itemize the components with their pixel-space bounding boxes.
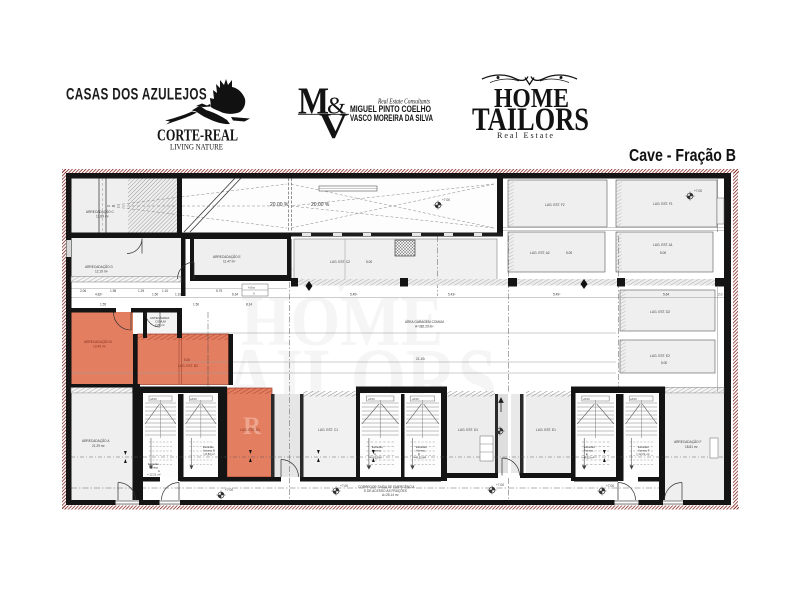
svg-text:2.06: 2.06 [80, 289, 86, 293]
svg-text:A=25.14 m²: A=25.14 m² [382, 493, 399, 497]
svg-text:LUG. EST. D2: LUG. EST. D2 [650, 310, 670, 314]
svg-text:V: V [319, 106, 348, 146]
svg-text:+7.00: +7.00 [694, 189, 702, 193]
svg-text:A.Exa: A.Exa [248, 286, 255, 290]
svg-text:ÁREA GARAGEM COMUM: ÁREA GARAGEM COMUM [405, 320, 444, 324]
svg-text:LUG. EST. B1: LUG. EST. B1 [240, 428, 260, 432]
svg-text:6.34: 6.34 [232, 293, 238, 297]
svg-text:= 12.21 m²: = 12.21 m² [147, 473, 161, 477]
svg-text:ARRECADAÇÃO C: ARRECADAÇÃO C [86, 209, 115, 214]
svg-text:8.14: 8.14 [246, 303, 252, 307]
svg-text:ARRECADAÇÃO B: ARRECADAÇÃO B [84, 339, 112, 344]
svg-text:20.00 %: 20.00 % [270, 202, 289, 208]
svg-text:+8.00: +8.00 [630, 397, 637, 401]
svg-text:LIVING NATURE: LIVING NATURE [170, 143, 223, 152]
svg-text:CASAS DOS AZULEJOS: CASAS DOS AZULEJOS [66, 85, 207, 104]
svg-text:A: A [253, 292, 255, 296]
svg-text:ARRECADAÇÃO D: ARRECADAÇÃO D [85, 264, 114, 269]
svg-text:5.00: 5.00 [660, 251, 666, 255]
svg-text:5.79: 5.79 [216, 289, 222, 293]
svg-text:ARRECADAÇÃO E: ARRECADAÇÃO E [213, 254, 241, 259]
svg-text:1.55: 1.55 [100, 303, 106, 307]
svg-text:LUG. EST. F1: LUG. EST. F1 [653, 202, 673, 206]
svg-text:LUG. EST. C2: LUG. EST. C2 [330, 260, 350, 264]
svg-text:+8.00: +8.00 [368, 397, 375, 401]
svg-text:5.49²: 5.49² [553, 293, 560, 297]
svg-text:+7.00: +7.00 [496, 483, 504, 487]
svg-text:ARRECADAÇÃO F: ARRECADAÇÃO F [674, 439, 702, 444]
svg-text:LUG. EST. E1: LUG. EST. E1 [536, 428, 556, 432]
svg-text:LUG. EST. A2: LUG. EST. A2 [530, 251, 550, 255]
svg-text:1.50: 1.50 [193, 303, 199, 307]
svg-text:5.00: 5.00 [366, 260, 372, 264]
svg-text:2.0: 2.0 [718, 293, 723, 297]
svg-text:5.43²: 5.43² [448, 293, 455, 297]
svg-text:A=382.20 m²: A=382.20 m² [415, 325, 433, 329]
svg-text:5.00: 5.00 [184, 358, 190, 362]
svg-text:= 8.52 m²: = 8.52 m² [370, 456, 382, 460]
svg-text:R: R [243, 413, 262, 440]
svg-text:LUG. EST. A1: LUG. EST. A1 [653, 243, 673, 247]
svg-text:5.00: 5.00 [566, 251, 572, 255]
svg-text:Real Estate: Real Estate [497, 131, 555, 140]
svg-text:1.50: 1.50 [152, 293, 158, 297]
svg-text:+7.00: +7.00 [225, 488, 233, 492]
svg-text:18.81 m²: 18.81 m² [685, 445, 698, 449]
svg-text:12.19 m²: 12.19 m² [95, 270, 108, 274]
svg-text:5.00: 5.00 [661, 361, 667, 365]
svg-text:= 12.21 m²: = 12.21 m² [636, 452, 650, 456]
svg-text:1.29: 1.29 [138, 289, 144, 293]
svg-text:= 8.52 m²: = 8.52 m² [582, 456, 594, 460]
svg-text:LUG. EST. C1: LUG. EST. C1 [318, 428, 338, 432]
svg-text:+7.00: +7.00 [606, 484, 614, 488]
svg-text:+8.00: +8.00 [412, 397, 419, 401]
svg-text:VASCO MOREIRA DA SILVA: VASCO MOREIRA DA SILVA [350, 113, 433, 123]
svg-text:ARRECADAÇÃO A: ARRECADAÇÃO A [82, 438, 110, 443]
svg-text:21.29 m²: 21.29 m² [92, 444, 105, 448]
svg-text:= 8.52 m²: = 8.52 m² [203, 452, 215, 456]
svg-text:+8.00: +8.00 [150, 397, 157, 401]
svg-text:+7.00: +7.00 [340, 484, 348, 488]
svg-text:1.10: 1.10 [162, 289, 168, 293]
svg-text:LUG. EST. E2: LUG. EST. E2 [650, 354, 670, 358]
svg-text:+8.00: +8.00 [190, 397, 197, 401]
svg-text:LUG. EST. D1: LUG. EST. D1 [458, 428, 478, 432]
svg-text:Cave - Fração B: Cave - Fração B [629, 145, 736, 165]
svg-text:13.45 m²: 13.45 m² [93, 345, 106, 349]
svg-text:+8.00: +8.00 [583, 397, 590, 401]
svg-text:1.10: 1.10 [175, 293, 181, 297]
svg-text:1.98: 1.98 [110, 289, 116, 293]
svg-text:20.00 %: 20.00 % [311, 202, 330, 208]
svg-text:11.47 m²: 11.47 m² [223, 260, 235, 264]
svg-text:5.45²: 5.45² [350, 293, 357, 297]
svg-text:+7.00: +7.00 [442, 198, 450, 202]
svg-text:5.64: 5.64 [663, 293, 669, 297]
svg-text:4.82²: 4.82² [95, 293, 102, 297]
svg-text:LUG. EST. F2: LUG. EST. F2 [545, 203, 565, 207]
svg-text:= 8.52 m²: = 8.52 m² [414, 456, 426, 460]
svg-text:21.10²: 21.10² [416, 357, 425, 361]
svg-text:LUG. EST. B2: LUG. EST. B2 [178, 364, 198, 368]
